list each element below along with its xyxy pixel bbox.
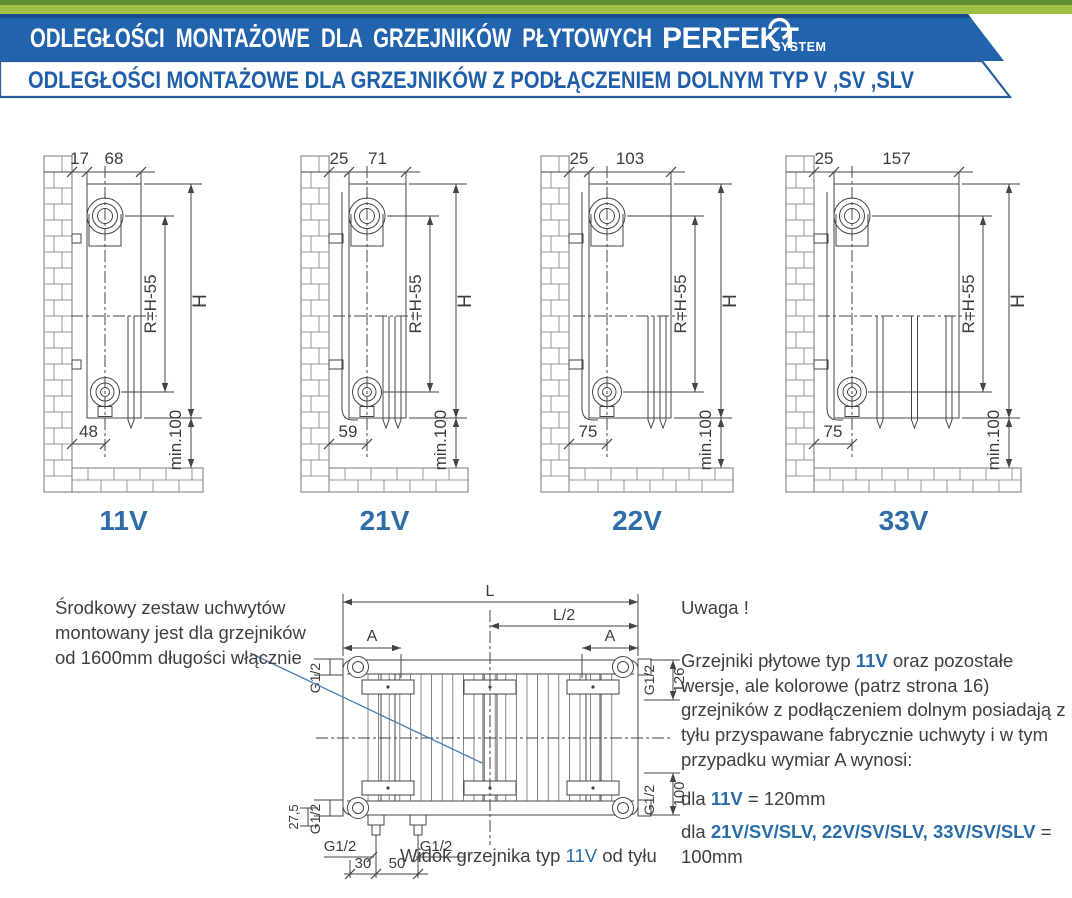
note-text: dla bbox=[681, 788, 711, 809]
note-right: Uwaga ! Grzejniki płytowe typ 11V oraz p… bbox=[681, 596, 1072, 879]
logo-system: SYSTEM bbox=[772, 40, 826, 54]
note-right-paragraph: Grzejniki płytowe typ 11V oraz pozostałe… bbox=[681, 649, 1072, 773]
dim-label: 71 bbox=[368, 149, 387, 168]
type-ref: 11V bbox=[566, 845, 598, 866]
caption-text: Widok grzejnika typ bbox=[400, 845, 566, 866]
dim-label: 59 bbox=[339, 422, 358, 441]
note-text: Grzejniki płytowe typ bbox=[681, 650, 856, 671]
note-text: dla bbox=[681, 821, 711, 842]
rear-view-caption: Widok grzejnika typ 11V od tyłu bbox=[400, 845, 657, 867]
dim-label: 17 bbox=[70, 149, 89, 168]
green-strip-dark bbox=[0, 0, 1072, 5]
green-strip bbox=[0, 5, 1072, 14]
dim-label: R=H-55 bbox=[406, 274, 425, 333]
type-label: 21V bbox=[360, 505, 410, 536]
dim-label: H bbox=[455, 294, 476, 308]
diagram-21v: 2571R=H-55Hmin.1005921V bbox=[285, 126, 498, 549]
note-left: Środkowy zestaw uchwytów montowany jest … bbox=[55, 596, 325, 670]
dim-G12: G1/2 bbox=[641, 665, 657, 696]
dim-label: 75 bbox=[579, 422, 598, 441]
dim-label: 25 bbox=[330, 149, 349, 168]
dim-label: R=H-55 bbox=[959, 274, 978, 333]
header-banners: ODLEGŁOŚCI MONTAŻOWE DLA GRZEJNIKÓW PŁYT… bbox=[0, 0, 1072, 112]
dim-label: R=H-55 bbox=[671, 274, 690, 333]
diagram-11v: 1768R=H-55Hmin.1004811V bbox=[28, 126, 233, 549]
dim-label: min.100 bbox=[431, 410, 450, 470]
dim-label: 157 bbox=[882, 149, 910, 168]
banner-title-2: ODLEGŁOŚCI MONTAŻOWE DLA GRZEJNIKÓW Z PO… bbox=[28, 66, 915, 94]
dim-label: 103 bbox=[616, 149, 644, 168]
side-view-33V: 25157R=H-55Hmin.1007533V bbox=[770, 126, 1051, 544]
type-label: 11V bbox=[99, 505, 148, 536]
dim-label: min.100 bbox=[166, 410, 185, 470]
catalog-page: ODLEGŁOŚCI MONTAŻOWE DLA GRZEJNIKÓW PŁYT… bbox=[0, 0, 1072, 898]
dim-30: 30 bbox=[355, 855, 372, 872]
dim-label: 48 bbox=[79, 422, 98, 441]
dim-label: min.100 bbox=[984, 410, 1003, 470]
dim-label: 25 bbox=[815, 149, 834, 168]
type-label: 22V bbox=[612, 505, 662, 536]
dim-L2: L/2 bbox=[553, 607, 575, 624]
side-view-21V: 2571R=H-55Hmin.1005921V bbox=[285, 126, 498, 544]
dim-label: 75 bbox=[824, 422, 843, 441]
note-right-title: Uwaga ! bbox=[681, 596, 1072, 621]
dim-A: A bbox=[367, 628, 378, 645]
dim-label: min.100 bbox=[696, 410, 715, 470]
caption-text: od tyłu bbox=[597, 845, 657, 866]
dim-L: L bbox=[486, 583, 495, 600]
dim-A: A bbox=[605, 628, 616, 645]
note-right-line2: dla 21V/SV/SLV, 22V/SV/SLV, 33V/SV/SLV =… bbox=[681, 820, 1072, 870]
banner-blue-edge bbox=[0, 14, 971, 18]
type-ref: 21V/SV/SLV, 22V/SV/SLV, 33V/SV/SLV bbox=[711, 821, 1036, 842]
banner-title-1: ODLEGŁOŚCI MONTAŻOWE DLA GRZEJNIKÓW PŁYT… bbox=[30, 23, 652, 53]
dim-label: 68 bbox=[105, 149, 124, 168]
side-view-11V: 1768R=H-55Hmin.1004811V bbox=[28, 126, 233, 544]
type-label: 33V bbox=[879, 505, 929, 536]
dim-label: R=H-55 bbox=[141, 274, 160, 333]
dim-G12: G1/2 bbox=[641, 785, 657, 816]
type-ref: 11V bbox=[711, 788, 743, 809]
diagram-22v: 25103R=H-55Hmin.1007522V bbox=[525, 126, 763, 549]
dim-label: H bbox=[190, 294, 211, 308]
dim-27-5: 27,5 bbox=[288, 804, 301, 829]
diagram-33v: 25157R=H-55Hmin.1007533V bbox=[770, 126, 1051, 549]
dim-label: 25 bbox=[570, 149, 589, 168]
type-ref: 11V bbox=[856, 650, 888, 671]
side-view-22V: 25103R=H-55Hmin.1007522V bbox=[525, 126, 763, 544]
dim-label: H bbox=[720, 294, 741, 308]
dim-G12: G1/2 bbox=[324, 838, 357, 855]
note-right-line1: dla 11V = 120mm bbox=[681, 787, 1072, 812]
dim-label: H bbox=[1008, 294, 1029, 308]
note-text: = 120mm bbox=[743, 788, 826, 809]
